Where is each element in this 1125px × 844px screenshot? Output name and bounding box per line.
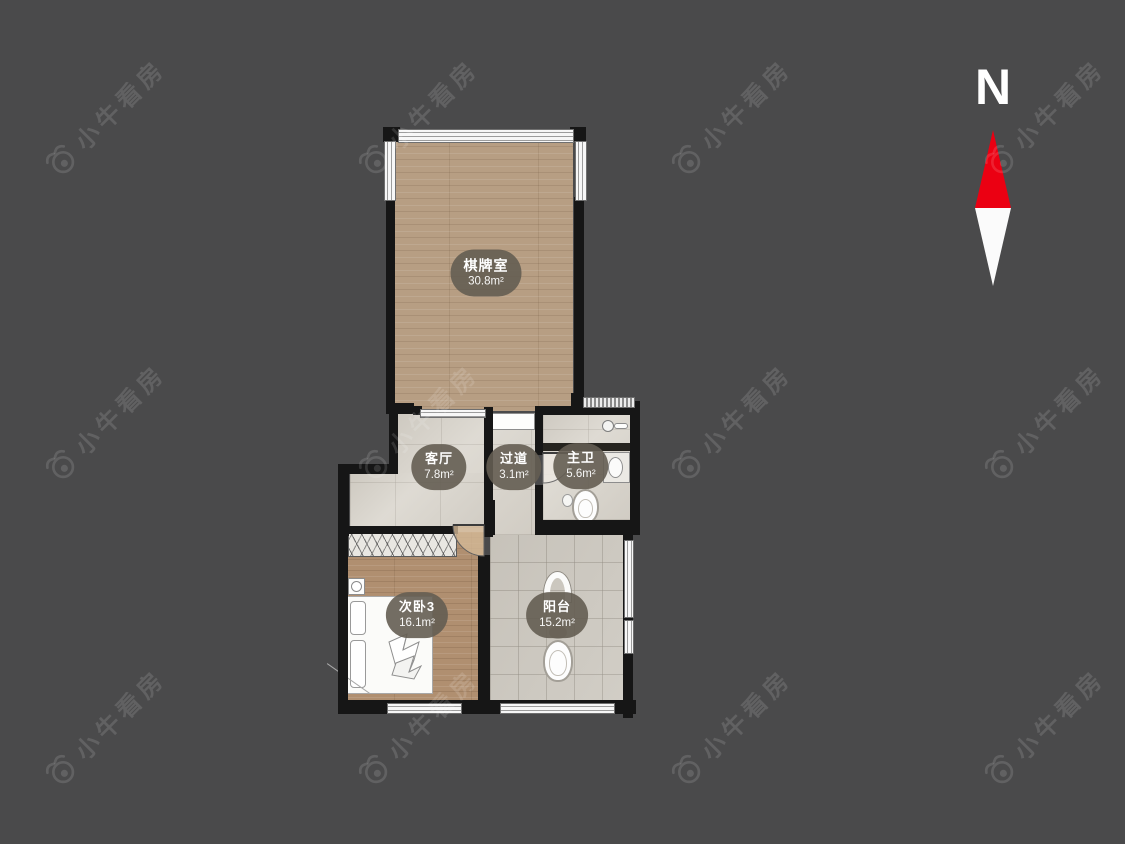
wall (389, 414, 398, 466)
watermark: 小牛看房 (664, 355, 798, 489)
window (398, 129, 574, 143)
window (624, 620, 634, 654)
room-area: 30.8m² (464, 275, 509, 290)
room-name: 主卫 (566, 450, 595, 467)
bull-logo-icon (39, 748, 84, 793)
bull-logo-icon (39, 443, 84, 488)
bull-logo-icon (665, 138, 710, 183)
watermark-text: 小牛看房 (65, 660, 172, 767)
floorplan-canvas: 棋牌室 30.8m² 客厅 7.8m² 过道 3.1m² 主卫 5.6m² 次卧… (0, 0, 1125, 844)
watermark-text: 小牛看房 (1004, 50, 1111, 157)
sink-icon (608, 457, 623, 478)
room-area: 15.2m² (539, 616, 575, 631)
room-name: 客厅 (424, 451, 453, 468)
faucet-icon (602, 420, 614, 432)
window (575, 141, 587, 201)
room-label-hallway: 过道 3.1m² (486, 444, 541, 490)
balcony-toilet-icon (543, 640, 573, 682)
toilet-icon (572, 489, 599, 524)
watermark: 小牛看房 (977, 660, 1111, 794)
compass-north-label: N (975, 62, 1011, 112)
watermark: 小牛看房 (664, 50, 798, 184)
room-label-bedroom: 次卧3 16.1m² (386, 592, 448, 638)
room-name: 棋牌室 (464, 256, 509, 274)
bull-logo-icon (978, 748, 1023, 793)
room-label-balcony: 阳台 15.2m² (526, 592, 588, 638)
room-label-chess: 棋牌室 30.8m² (451, 249, 522, 296)
pillow (350, 601, 366, 635)
room-name: 过道 (499, 451, 528, 468)
window (387, 703, 462, 714)
hallway-cabinet (492, 413, 535, 430)
room-area: 7.8m² (424, 468, 453, 483)
sliding-door-track (420, 409, 486, 418)
room-area: 5.6m² (566, 467, 595, 482)
bull-logo-icon (978, 443, 1023, 488)
watermark-text: 小牛看房 (1004, 355, 1111, 462)
watermark: 小牛看房 (664, 660, 798, 794)
room-label-bathroom: 主卫 5.6m² (553, 443, 608, 489)
watermark: 小牛看房 (38, 50, 172, 184)
compass-needle-icon (970, 130, 1016, 286)
floor-drain-icon (562, 494, 573, 507)
room-area: 3.1m² (499, 468, 528, 483)
wall (389, 403, 414, 414)
watermark-text: 小牛看房 (691, 660, 798, 767)
bull-logo-icon (665, 748, 710, 793)
wall (338, 534, 348, 714)
wall (535, 409, 543, 455)
vent-grille (583, 397, 635, 408)
nightstand-dial-icon (351, 581, 362, 592)
watermark-text: 小牛看房 (691, 355, 798, 462)
room-name: 次卧3 (399, 599, 435, 616)
room-area: 16.1m² (399, 616, 435, 631)
watermark: 小牛看房 (977, 355, 1111, 489)
window (500, 703, 615, 714)
bull-logo-icon (665, 443, 710, 488)
wardrobe (348, 531, 457, 557)
watermark: 小牛看房 (38, 660, 172, 794)
wall (484, 500, 495, 535)
wall (338, 464, 398, 474)
room-name: 阳台 (539, 599, 575, 616)
wall (630, 401, 640, 535)
watermark-text: 小牛看房 (65, 355, 172, 462)
wall (478, 555, 490, 705)
faucet-handle-icon (614, 423, 628, 429)
bull-logo-icon (39, 138, 84, 183)
wall (338, 526, 458, 534)
window (624, 540, 634, 618)
wall (386, 197, 395, 414)
wall (574, 197, 584, 397)
watermark-text: 小牛看房 (691, 50, 798, 157)
watermark-text: 小牛看房 (1004, 660, 1111, 767)
room-label-living: 客厅 7.8m² (411, 444, 466, 490)
bull-logo-icon (352, 748, 397, 793)
watermark-text: 小牛看房 (65, 50, 172, 157)
watermark: 小牛看房 (38, 355, 172, 489)
window (384, 141, 396, 201)
